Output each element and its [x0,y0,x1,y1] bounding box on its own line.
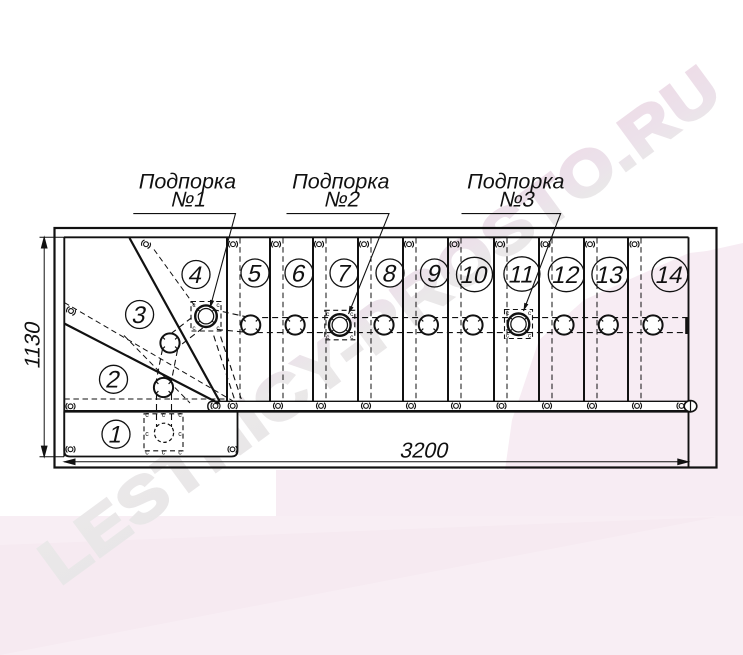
svg-text:c: c [178,412,182,419]
svg-text:3200: 3200 [398,438,451,463]
svg-text:c: c [145,431,149,438]
svg-text:c: c [145,412,149,419]
svg-text:c: c [145,450,149,457]
svg-text:c: c [162,450,166,457]
svg-text:c: c [162,412,166,419]
svg-text:c: c [178,450,182,457]
svg-text:№2: №2 [322,187,363,212]
svg-text:c: c [178,431,182,438]
svg-text:№1: №1 [169,187,210,212]
svg-text:№3: №3 [497,187,538,212]
svg-text:1130: 1130 [20,319,45,371]
